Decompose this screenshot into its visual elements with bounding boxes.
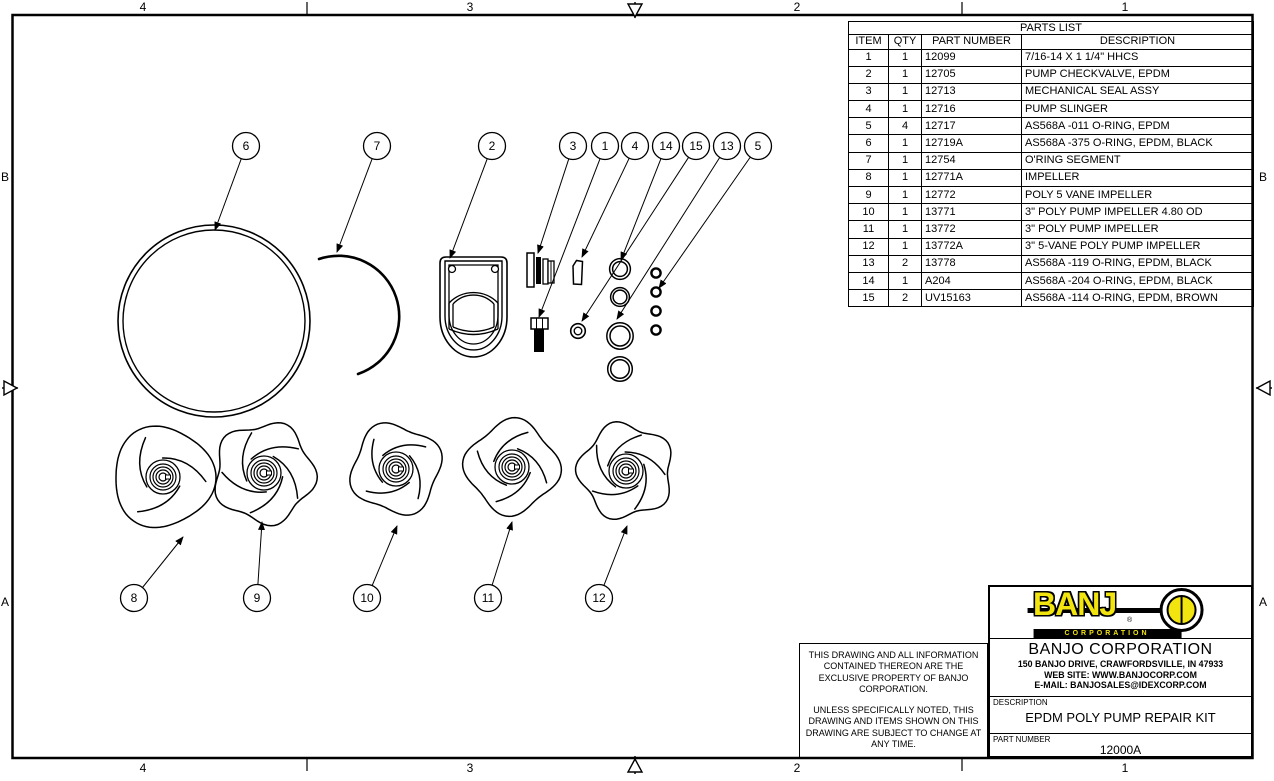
parts-list-row: 2112705PUMP CHECKVALVE, EPDM [849, 66, 1254, 83]
parts-list-row: 6112719AAS568A -375 O-RING, EPDM, BLACK [849, 135, 1254, 152]
cell-description: AS568A -119 O-RING, EPDM, BLACK [1022, 255, 1254, 272]
parts-list-row: 11120997/16-14 X 1 1/4" HHCS [849, 49, 1254, 66]
zone-label-bottom: 3 [467, 761, 474, 775]
disclaimer-note: THIS DRAWING AND ALL INFORMATION CONTAIN… [799, 643, 988, 758]
leader-line-13 [617, 157, 720, 319]
cell-item: 2 [849, 66, 889, 83]
cell-qty: 1 [889, 169, 922, 186]
cell-description: AS568A -375 O-RING, EPDM, BLACK [1022, 135, 1254, 152]
logo-corporation-bar: CORPORATION [1033, 629, 1181, 639]
leader-line-9 [258, 522, 262, 585]
callout-number-2: 2 [489, 139, 496, 153]
company-info: BANJO CORPORATION 150 BANJO DRIVE, CRAWF… [990, 639, 1251, 697]
cell-item: 14 [849, 272, 889, 289]
cell-qty: 4 [889, 118, 922, 135]
oring-item5-drawing [651, 268, 660, 334]
cell-part_number: 13772A [922, 238, 1022, 255]
description-section: DESCRIPTION EPDM POLY PUMP REPAIR KIT [990, 697, 1251, 734]
leader-line-10 [372, 526, 397, 586]
mechanical-seal-item3-drawing [527, 253, 554, 287]
callout-number-5: 5 [755, 139, 762, 153]
cell-qty: 1 [889, 49, 922, 66]
company-name: BANJO CORPORATION [990, 641, 1251, 659]
callout-number-7: 7 [374, 139, 381, 153]
callout-number-3: 3 [570, 139, 577, 153]
parts-list-header-row: ITEM QTY PART NUMBER DESCRIPTION [849, 35, 1254, 50]
callout-number-10: 10 [360, 591, 374, 605]
cell-part_number: A204 [922, 272, 1022, 289]
cell-item: 10 [849, 204, 889, 221]
col-header-description: DESCRIPTION [1022, 35, 1254, 50]
slinger-item4-drawing [573, 261, 583, 285]
bolt-item1-drawing [531, 318, 548, 352]
cell-item: 13 [849, 255, 889, 272]
col-header-part-number: PART NUMBER [922, 35, 1022, 50]
parts-list-row: 9112772POLY 5 VANE IMPELLER [849, 187, 1254, 204]
cell-item: 8 [849, 169, 889, 186]
callout-number-8: 8 [131, 591, 138, 605]
cell-description: 3" POLY PUMP IMPELLER 4.80 OD [1022, 204, 1254, 221]
callout-number-11: 11 [482, 591, 495, 605]
cell-qty: 1 [889, 152, 922, 169]
cell-item: 1 [849, 49, 889, 66]
logo-box: BANJ ® CORPORATION [990, 587, 1251, 639]
impeller-9-drawing [215, 423, 317, 526]
title-block: BANJ ® CORPORATION BANJO CORPORATION 150… [988, 585, 1253, 758]
impeller-12-drawing [576, 422, 671, 520]
callout-number-13: 13 [720, 139, 734, 153]
cell-part_number: 12716 [922, 101, 1022, 118]
cell-description: 3" 5-VANE POLY PUMP IMPELLER [1022, 238, 1254, 255]
cell-description: POLY 5 VANE IMPELLER [1022, 187, 1254, 204]
cell-item: 9 [849, 187, 889, 204]
impeller-10-drawing [350, 423, 442, 515]
callout-number-15: 15 [689, 139, 703, 153]
cell-qty: 1 [889, 187, 922, 204]
parts-list-row: 4112716PUMP SLINGER [849, 101, 1254, 118]
callout-number-1: 1 [602, 139, 609, 153]
cell-item: 15 [849, 290, 889, 307]
disclaimer-paragraph-2: UNLESS SPECIFICALLY NOTED, THIS DRAWING … [803, 705, 984, 750]
oring-item15-drawing [571, 324, 586, 339]
cell-part_number: 12705 [922, 66, 1022, 83]
parts-list-row: 5412717AS568A -011 O-RING, EPDM [849, 118, 1254, 135]
leader-line-6 [215, 159, 241, 230]
cell-description: AS568A -114 O-RING, EPDM, BROWN [1022, 290, 1254, 307]
cell-part_number: 12754 [922, 152, 1022, 169]
engineering-drawing-sheet: { "sheet": { "zone_labels_top": ["4", "3… [0, 0, 1274, 776]
leader-line-15 [582, 157, 689, 321]
col-header-item: ITEM [849, 35, 889, 50]
parts-list-row: 141A204AS568A -204 O-RING, EPDM, BLACK [849, 272, 1254, 289]
zone-label-left: A [1, 595, 9, 609]
cell-description: PUMP CHECKVALVE, EPDM [1022, 66, 1254, 83]
cell-qty: 2 [889, 290, 922, 307]
cell-item: 7 [849, 152, 889, 169]
cell-item: 12 [849, 238, 889, 255]
part-number-value: 12000A [990, 743, 1251, 757]
oring-item6-drawing [118, 225, 310, 417]
company-email: E-MAIL: BANJOSALES@IDEXCORP.COM [990, 680, 1251, 691]
banjo-logo: BANJ ® CORPORATION [1031, 589, 1203, 637]
parts-list-title: PARTS LIST [848, 21, 1254, 34]
cell-qty: 1 [889, 272, 922, 289]
cell-description: AS568A -011 O-RING, EPDM [1022, 118, 1254, 135]
cell-description: 3" POLY PUMP IMPELLER [1022, 221, 1254, 238]
zone-label-top: 4 [140, 0, 147, 14]
cell-qty: 1 [889, 238, 922, 255]
zone-label-bottom: 2 [794, 761, 801, 775]
cell-description: O'RING SEGMENT [1022, 152, 1254, 169]
parts-list: PARTS LIST ITEM QTY PART NUMBER DESCRIPT… [848, 21, 1254, 307]
callout-number-9: 9 [254, 591, 261, 605]
leader-line-12 [604, 526, 627, 585]
zone-label-bottom: 4 [140, 761, 147, 775]
cell-qty: 1 [889, 204, 922, 221]
cell-part_number: 13778 [922, 255, 1022, 272]
company-address: 150 BANJO DRIVE, CRAWFORDSVILLE, IN 4793… [990, 659, 1251, 670]
parts-list-row: 152UV15163AS568A -114 O-RING, EPDM, BROW… [849, 290, 1254, 307]
cell-item: 3 [849, 83, 889, 100]
company-website: WEB SITE: WWW.BANJOCORP.COM [990, 670, 1251, 681]
parts-list-row: 8112771AIMPELLER [849, 169, 1254, 186]
cell-part_number: 12099 [922, 49, 1022, 66]
cell-qty: 1 [889, 135, 922, 152]
cell-description: 7/16-14 X 1 1/4" HHCS [1022, 49, 1254, 66]
cell-qty: 1 [889, 221, 922, 238]
zone-label-left: B [1, 170, 9, 184]
cell-part_number: UV15163 [922, 290, 1022, 307]
leader-line-7 [337, 159, 372, 252]
leader-line-11 [492, 522, 512, 585]
cell-qty: 2 [889, 255, 922, 272]
parts-list-row: 7112754O'RING SEGMENT [849, 152, 1254, 169]
oring-segment-item7-drawing [319, 256, 399, 374]
leader-line-5 [659, 157, 750, 288]
zone-label-bottom: 1 [1122, 761, 1129, 775]
cell-part_number: 12713 [922, 83, 1022, 100]
leader-line-8 [143, 537, 184, 588]
parts-list-row: 13213778AS568A -119 O-RING, EPDM, BLACK [849, 255, 1254, 272]
zone-label-top: 2 [794, 0, 801, 14]
cell-part_number: 12719A [922, 135, 1022, 152]
cell-part_number: 13771 [922, 204, 1022, 221]
parts-list-row: 12113772A3" 5-VANE POLY PUMP IMPELLER [849, 238, 1254, 255]
leader-line-4 [582, 158, 629, 257]
callout-number-14: 14 [659, 139, 673, 153]
zone-label-top: 3 [467, 0, 474, 14]
parts-list-row: 101137713" POLY PUMP IMPELLER 4.80 OD [849, 204, 1254, 221]
parts-list-row: 111137723" POLY PUMP IMPELLER [849, 221, 1254, 238]
callout-number-6: 6 [243, 139, 250, 153]
zone-label-right: B [1259, 170, 1267, 184]
cell-description: MECHANICAL SEAL ASSY [1022, 83, 1254, 100]
cell-qty: 1 [889, 66, 922, 83]
cell-item: 11 [849, 221, 889, 238]
callout-number-12: 12 [592, 591, 606, 605]
logo-wordmark: BANJ [1033, 586, 1116, 623]
part-number-section: PART NUMBER 12000A [990, 734, 1251, 756]
leader-line-2 [450, 159, 487, 258]
zone-label-right: A [1259, 595, 1267, 609]
description-value: EPDM POLY PUMP REPAIR KIT [990, 710, 1251, 725]
impeller-8-drawing [116, 426, 216, 527]
cell-description: AS568A -204 O-RING, EPDM, BLACK [1022, 272, 1254, 289]
col-header-qty: QTY [889, 35, 922, 50]
cell-description: PUMP SLINGER [1022, 101, 1254, 118]
disclaimer-paragraph-1: THIS DRAWING AND ALL INFORMATION CONTAIN… [803, 650, 984, 695]
impeller-11-drawing [463, 418, 562, 517]
checkvalve-item2-drawing [440, 257, 507, 357]
zone-label-top: 1 [1122, 0, 1129, 14]
cell-qty: 1 [889, 83, 922, 100]
registered-mark: ® [1127, 617, 1132, 624]
cell-item: 6 [849, 135, 889, 152]
cell-qty: 1 [889, 101, 922, 118]
parts-list-row: 3112713MECHANICAL SEAL ASSY [849, 83, 1254, 100]
description-label: DESCRIPTION [990, 697, 1251, 707]
cell-item: 4 [849, 101, 889, 118]
parts-list-table: ITEM QTY PART NUMBER DESCRIPTION 1112099… [848, 34, 1254, 307]
cell-item: 5 [849, 118, 889, 135]
banjo-head-icon [1159, 588, 1203, 632]
cell-part_number: 12772 [922, 187, 1022, 204]
cell-part_number: 12717 [922, 118, 1022, 135]
banjo-head-drum [1166, 595, 1196, 625]
callout-number-4: 4 [632, 139, 639, 153]
leader-line-3 [538, 159, 569, 253]
cell-description: IMPELLER [1022, 169, 1254, 186]
cell-part_number: 12771A [922, 169, 1022, 186]
cell-part_number: 13772 [922, 221, 1022, 238]
